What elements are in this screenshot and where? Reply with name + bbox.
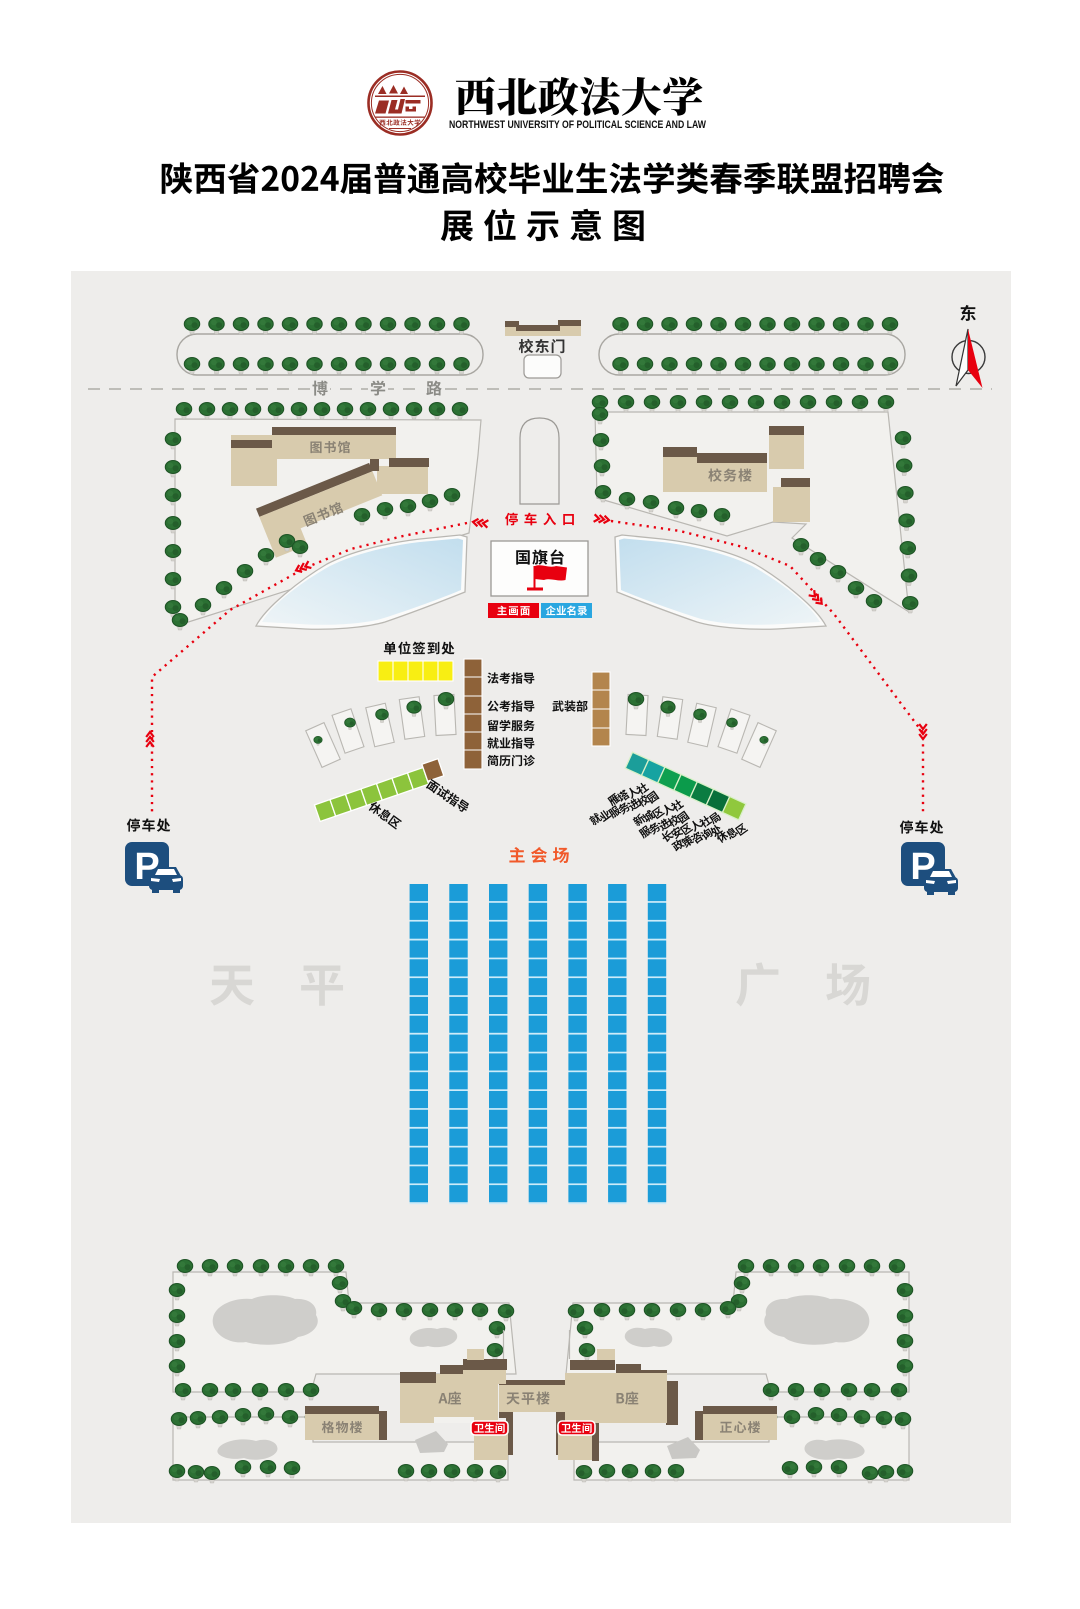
- svg-text:NORTHWEST UNIVERSITY OF POLITI: NORTHWEST UNIVERSITY OF POLITICAL SCIENC…: [449, 119, 706, 131]
